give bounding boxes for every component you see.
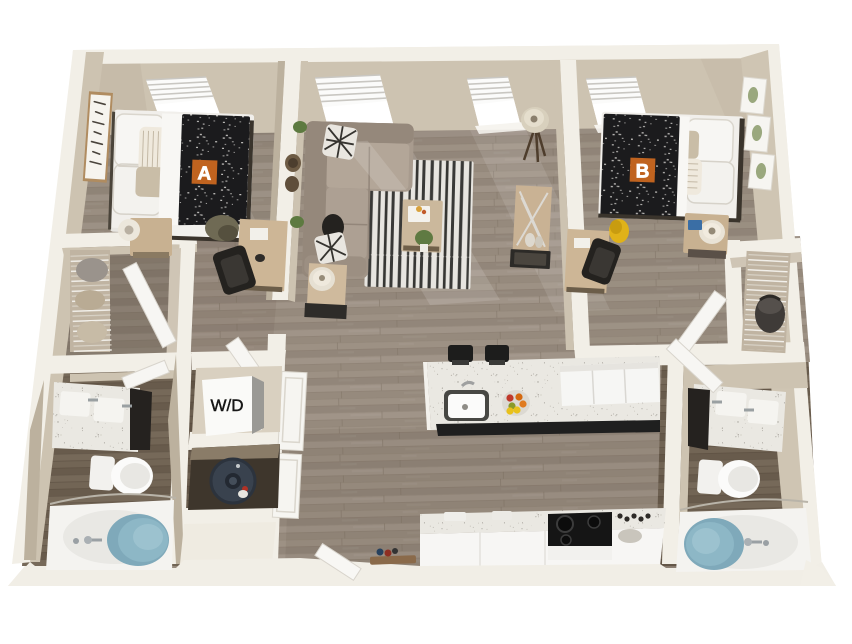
svg-text:A: A: [197, 163, 212, 184]
svg-text:W/D: W/D: [210, 396, 243, 415]
svg-text:B: B: [636, 162, 650, 183]
